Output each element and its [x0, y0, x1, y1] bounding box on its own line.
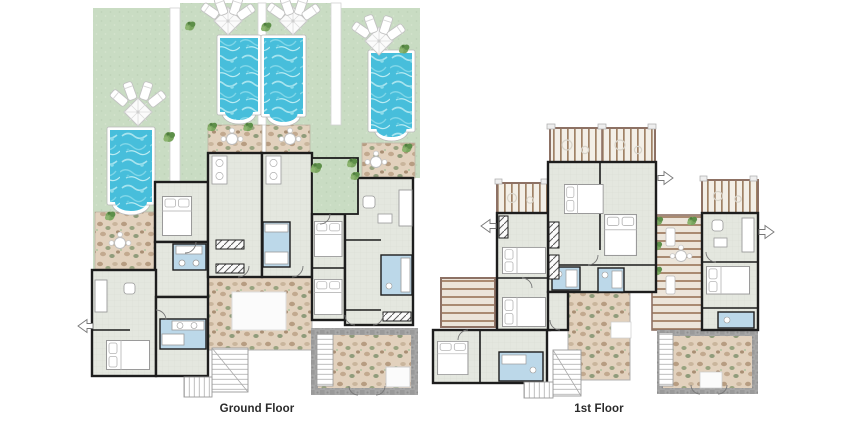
armchair [124, 283, 135, 294]
balcony [700, 176, 758, 213]
bed [314, 221, 342, 256]
closet [383, 312, 411, 321]
first-floor-plan [433, 124, 774, 398]
bed [107, 341, 150, 370]
pool [107, 127, 155, 215]
ground-floor-label: Ground Floor [177, 403, 337, 415]
closet [549, 255, 559, 279]
floor-plans-drawing [0, 0, 863, 422]
first-floor-label: 1st Floor [519, 403, 679, 415]
floor-plan-page: Ground Floor 1st Floor [0, 0, 863, 422]
ground-floor-plan [78, 0, 420, 397]
closet [216, 264, 244, 273]
bed [605, 215, 637, 256]
terrace-stairs [317, 334, 333, 386]
entrance-arrow [481, 220, 496, 233]
pool [368, 50, 415, 141]
pool [261, 35, 306, 126]
balcony [495, 179, 548, 213]
bed [503, 247, 546, 273]
pool [217, 35, 261, 124]
roof-terrace [657, 330, 758, 394]
sofa [742, 218, 754, 252]
closet [549, 222, 559, 248]
entrance-arrow [78, 320, 93, 333]
staircase [524, 382, 553, 398]
terrace-stairs [659, 333, 673, 386]
bed [314, 279, 342, 314]
balcony [547, 124, 656, 162]
bed [503, 298, 546, 327]
bed [438, 341, 468, 374]
bathroom [718, 312, 754, 328]
entrance-arrow [759, 226, 774, 239]
balcony [441, 278, 495, 327]
staircase [184, 377, 212, 397]
bed [564, 185, 603, 214]
coffee-table [378, 214, 392, 223]
sofa [399, 190, 412, 226]
sun-deck [652, 215, 702, 330]
entrance-arrow [658, 172, 673, 185]
sofa [95, 280, 107, 312]
rear-terrace [311, 328, 418, 395]
armchair [363, 196, 375, 208]
patio-rug [232, 292, 286, 330]
bed [707, 266, 750, 294]
armchair [712, 220, 723, 231]
bed [163, 197, 192, 236]
coffee-table [714, 238, 727, 247]
closet [216, 240, 244, 249]
closet [499, 216, 508, 238]
